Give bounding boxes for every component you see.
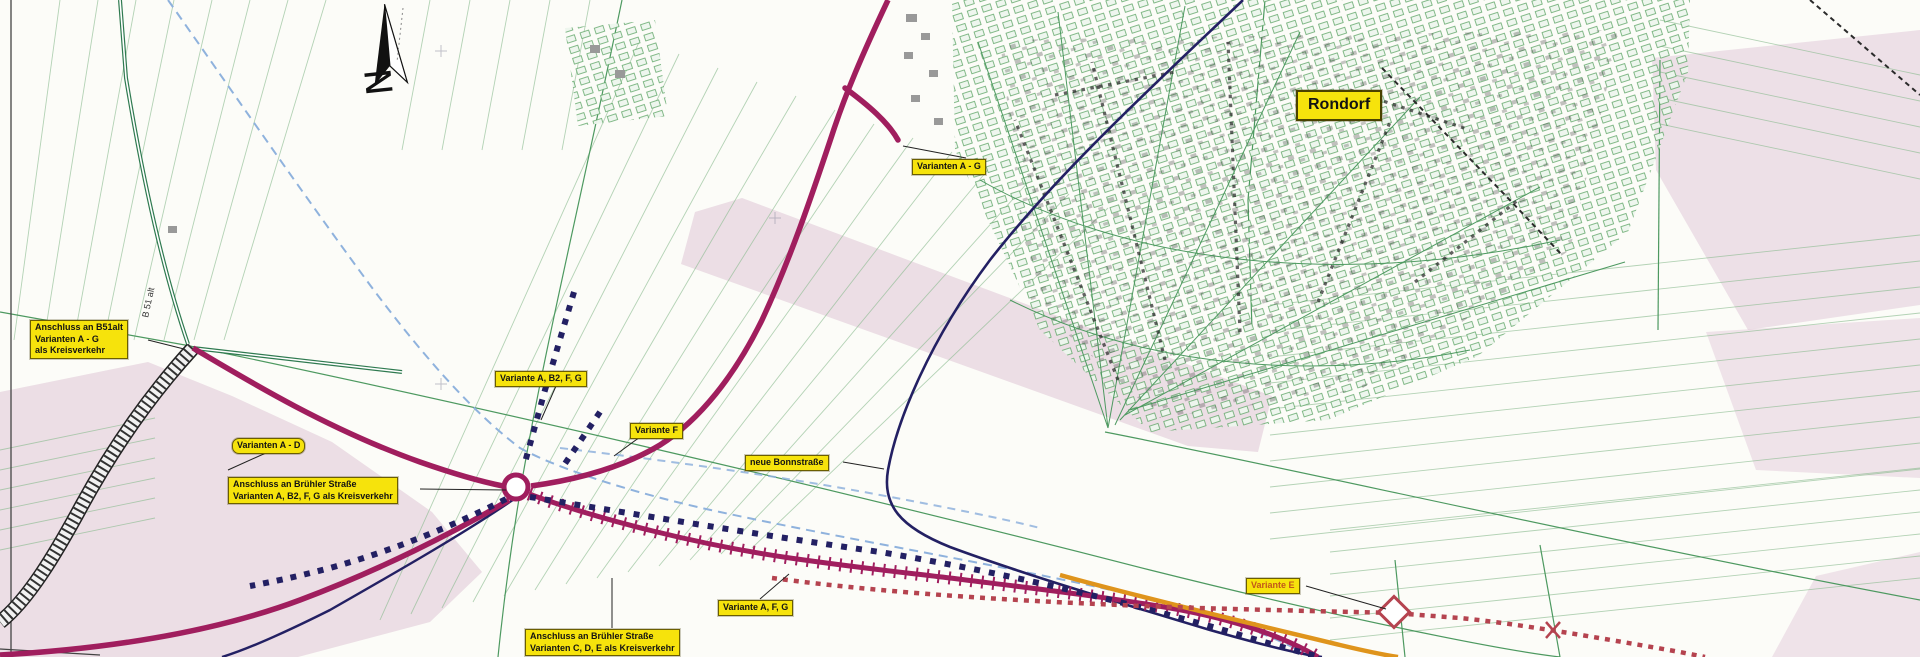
roundabout-symbol bbox=[504, 475, 528, 499]
label-varianten-a-g: Varianten A - G bbox=[912, 159, 986, 175]
label-anschluss-b51-line2: Varianten A - G bbox=[35, 334, 123, 346]
label-variante-f-text: Variante F bbox=[635, 425, 678, 435]
label-varianten-a-d-text: Varianten A - D bbox=[237, 440, 300, 450]
map-graphics: N B 51 alt bbox=[0, 0, 1920, 657]
label-variante-e: Variante E bbox=[1246, 578, 1300, 594]
label-rondorf-text: Rondorf bbox=[1308, 96, 1370, 113]
label-anschluss-sued-line1: Anschluss an Brühler Straße bbox=[530, 631, 675, 643]
label-variante-e-text: Variante E bbox=[1251, 580, 1295, 590]
label-varianten-a-d: Varianten A - D bbox=[232, 438, 305, 454]
label-variante-a-b2-f-g: Variante A, B2, F, G bbox=[495, 371, 587, 387]
label-anschluss-b51-line3: als Kreisverkehr bbox=[35, 345, 123, 357]
label-anschluss-sued-line2: Varianten C, D, E als Kreisverkehr bbox=[530, 643, 675, 655]
label-anschluss-bruehler-line2: Varianten A, B2, F, G als Kreisverkehr bbox=[233, 491, 393, 503]
label-neue-bonnstrasse-text: neue Bonnstraße bbox=[750, 457, 824, 467]
label-anschluss-b51-line1: Anschluss an B51alt bbox=[35, 322, 123, 334]
label-anschluss-bruehler: Anschluss an Brühler Straße Varianten A,… bbox=[228, 477, 398, 504]
label-variante-a-b2-f-g-text: Variante A, B2, F, G bbox=[500, 373, 582, 383]
planning-map-canvas: N B 51 alt Rondorf Varianten A - G Ansch… bbox=[0, 0, 1920, 657]
label-variante-f: Variante F bbox=[630, 423, 683, 439]
north-letter: N bbox=[355, 67, 399, 98]
label-variante-a-f-g: Variante A, F, G bbox=[718, 600, 793, 616]
label-varianten-a-g-text: Varianten A - G bbox=[917, 161, 981, 171]
label-anschluss-b51: Anschluss an B51alt Varianten A - G als … bbox=[30, 320, 128, 359]
label-rondorf: Rondorf bbox=[1296, 90, 1382, 121]
label-anschluss-bruehler-line1: Anschluss an Brühler Straße bbox=[233, 479, 393, 491]
label-variante-a-f-g-text: Variante A, F, G bbox=[723, 602, 788, 612]
label-anschluss-sued: Anschluss an Brühler Straße Varianten C,… bbox=[525, 629, 680, 656]
label-neue-bonnstrasse: neue Bonnstraße bbox=[745, 455, 829, 471]
